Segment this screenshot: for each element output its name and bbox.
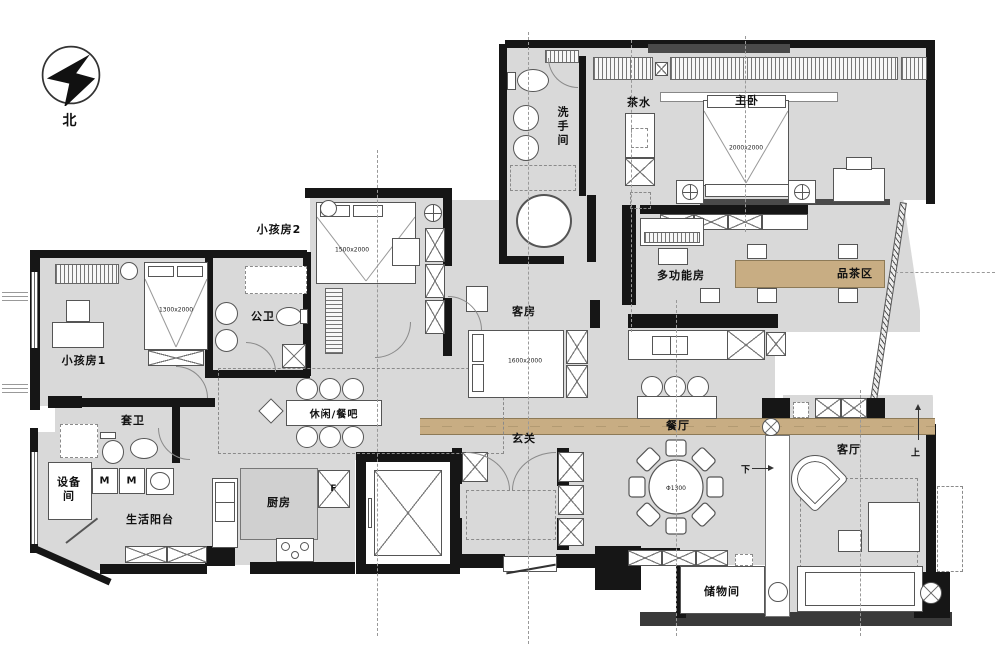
burner	[300, 542, 309, 551]
tea-cabinet-inner	[631, 128, 648, 148]
master-bed-dim: 2000x2000	[729, 145, 763, 152]
wardrobe	[670, 57, 898, 80]
pillow	[353, 205, 383, 217]
room-label-balcony: 生活阳台	[126, 511, 174, 527]
room-label-public-bath: 公卫	[251, 308, 275, 324]
dresser	[833, 168, 885, 202]
cabinet	[566, 330, 588, 364]
stool	[120, 262, 138, 280]
compass-north-label: 北	[63, 110, 78, 130]
wall-segment	[205, 546, 235, 566]
bar-stool	[296, 378, 318, 400]
wall-segment	[865, 398, 885, 418]
room-label-dining: 餐厅	[666, 417, 690, 433]
ceiling-lamp-icon	[424, 204, 442, 222]
wall-segment	[215, 250, 307, 258]
nightstand-lamp-icon	[682, 184, 698, 200]
washer-label: M	[100, 476, 111, 487]
sink-icon	[513, 105, 539, 131]
room-label-entry: 玄关	[512, 430, 536, 446]
pillow	[177, 266, 203, 277]
axis-line	[745, 36, 746, 232]
bar-stool	[319, 426, 341, 448]
cabinet	[425, 264, 445, 298]
stool	[320, 200, 337, 217]
kids1-desk	[52, 322, 104, 348]
room-label-guest: 客房	[512, 303, 536, 319]
down-arrow-head	[768, 465, 774, 471]
tea-chair	[747, 244, 767, 259]
column	[768, 582, 788, 602]
window	[31, 272, 38, 348]
bar-stool	[342, 378, 364, 400]
wardrobe-gap	[655, 62, 668, 76]
column	[920, 582, 942, 604]
shower-area	[510, 165, 576, 191]
wall-segment	[640, 205, 808, 214]
fridge-label: F	[330, 484, 337, 494]
pillow	[148, 266, 174, 277]
stool	[735, 554, 753, 566]
kids1-chair	[66, 300, 90, 322]
cabinet-row	[696, 550, 728, 566]
elevator-door	[368, 498, 372, 528]
dresser-chair	[846, 157, 872, 170]
entry-mat	[466, 490, 556, 540]
cabinet	[425, 228, 445, 262]
shower-tub	[245, 266, 307, 294]
kids2-bed-dim: 1500x2000	[335, 247, 369, 254]
floor-plan: 北	[0, 0, 1000, 652]
wall-segment	[762, 398, 790, 420]
pillow	[472, 364, 484, 392]
axis-line	[860, 390, 861, 636]
room-label-bar: 休闲/餐吧	[310, 406, 359, 421]
stair-down-label: 下	[741, 463, 751, 476]
cabinet-row	[125, 546, 167, 563]
stair-up-label: 上	[911, 446, 921, 459]
dining-stool	[641, 376, 663, 398]
bed-bench	[705, 184, 789, 197]
guest-bed-dim: 1600x2000	[508, 358, 542, 365]
sink-icon	[130, 438, 158, 459]
nightstand-lamp-icon	[794, 184, 810, 200]
wall-segment	[579, 56, 586, 196]
master-bed	[703, 100, 789, 186]
daybed-mat	[644, 232, 700, 243]
beam-strip	[648, 44, 790, 53]
side-table	[838, 530, 862, 552]
kids2-desk	[392, 238, 420, 266]
shower-area	[60, 424, 98, 458]
bathtub-icon	[516, 194, 572, 248]
burner	[291, 551, 299, 559]
coffee-table	[868, 502, 920, 552]
window	[31, 452, 38, 544]
wardrobe	[325, 288, 343, 354]
sink-icon	[215, 302, 238, 325]
entry-cabinet	[558, 518, 584, 546]
wall-segment	[305, 188, 452, 198]
washer-label: M	[127, 476, 138, 487]
room-label-kitchen: 厨房	[267, 494, 291, 510]
entry-cabinet	[558, 485, 584, 515]
wall-segment	[499, 44, 507, 262]
wall-segment	[926, 44, 935, 204]
toilet-tank	[100, 432, 116, 439]
sink-icon	[513, 135, 539, 161]
axis-line	[631, 40, 632, 332]
compass-icon	[40, 44, 102, 106]
tea-chair	[700, 288, 720, 303]
side-table	[658, 248, 688, 265]
room-label-washroom: 洗手间	[554, 106, 570, 148]
axis-line	[528, 32, 529, 644]
wardrobe	[593, 57, 653, 80]
wall-segment	[499, 256, 564, 264]
toilet-tank	[507, 72, 516, 90]
wall-segment	[250, 562, 355, 574]
axis-line	[895, 272, 995, 273]
dim-tick	[2, 384, 28, 393]
fan-icon	[762, 418, 780, 436]
wall-segment	[35, 250, 215, 258]
wall-segment	[556, 554, 600, 568]
sink-icon	[215, 329, 238, 352]
kitchen-sink	[215, 482, 235, 522]
appliance	[727, 330, 765, 360]
burner	[281, 542, 290, 551]
stool	[630, 192, 651, 209]
down-arrow	[752, 468, 768, 469]
media-console	[762, 214, 808, 230]
cabinet	[282, 344, 306, 368]
axis-line	[377, 150, 378, 636]
wall-segment	[48, 396, 82, 408]
wall-segment	[628, 314, 778, 328]
cabinet	[566, 365, 588, 398]
room-label-living: 客厅	[837, 441, 861, 457]
cabinet	[148, 350, 204, 366]
bar-stool	[342, 426, 364, 448]
elevator-car	[374, 470, 442, 556]
wall-segment	[640, 612, 952, 626]
tea-chair	[757, 288, 777, 303]
up-arrow-head	[915, 404, 921, 410]
tea-chair	[838, 244, 858, 259]
wall-segment	[70, 398, 215, 407]
counter-sink	[652, 336, 688, 355]
bar-stool	[319, 378, 341, 400]
wardrobe	[901, 57, 927, 80]
wall-segment	[926, 424, 936, 579]
tea-chair	[838, 288, 858, 303]
toilet-icon	[276, 307, 302, 326]
toilet-icon	[102, 440, 124, 464]
cabinet-row	[662, 550, 696, 566]
cabinet	[425, 300, 445, 334]
room-label-equipment: 设备间	[56, 476, 82, 505]
up-arrow	[918, 410, 919, 440]
room-label-ensuite: 套卫	[121, 412, 145, 428]
dining-side-table	[637, 396, 717, 419]
cabinet-row	[841, 398, 867, 418]
axis-line	[676, 300, 677, 636]
cabinet-row	[167, 546, 207, 563]
dining-stool	[664, 376, 686, 398]
room-label-kids2: 小孩房2	[257, 221, 302, 237]
toilet-tank	[300, 309, 308, 324]
wall-segment	[590, 300, 600, 328]
dim-tick	[2, 292, 28, 301]
cabinet-row	[815, 398, 841, 418]
wall-segment	[100, 564, 207, 574]
cabinet-row	[628, 550, 662, 566]
dining-stool	[687, 376, 709, 398]
room-label-multi: 多功能房	[657, 267, 705, 283]
balcony-ledge	[937, 486, 963, 572]
tea-cabinet-low	[625, 158, 655, 186]
toilet-icon	[517, 69, 549, 92]
entry-cabinet	[558, 452, 584, 482]
sink-icon	[150, 472, 170, 490]
wardrobe	[55, 264, 119, 284]
room-label-storage: 储物间	[704, 583, 740, 599]
room-label-kids1: 小孩房1	[62, 352, 107, 368]
pillow	[472, 334, 484, 362]
bar-stool	[296, 426, 318, 448]
wall-segment	[587, 195, 596, 262]
room-label-tea-area: 品茶区	[837, 265, 873, 281]
appliance	[766, 332, 786, 356]
stool	[793, 402, 809, 418]
wall-segment	[622, 205, 636, 305]
room-label-master: 主卧	[735, 92, 759, 108]
kids1-bed-dim: 1300x2000	[159, 307, 193, 314]
